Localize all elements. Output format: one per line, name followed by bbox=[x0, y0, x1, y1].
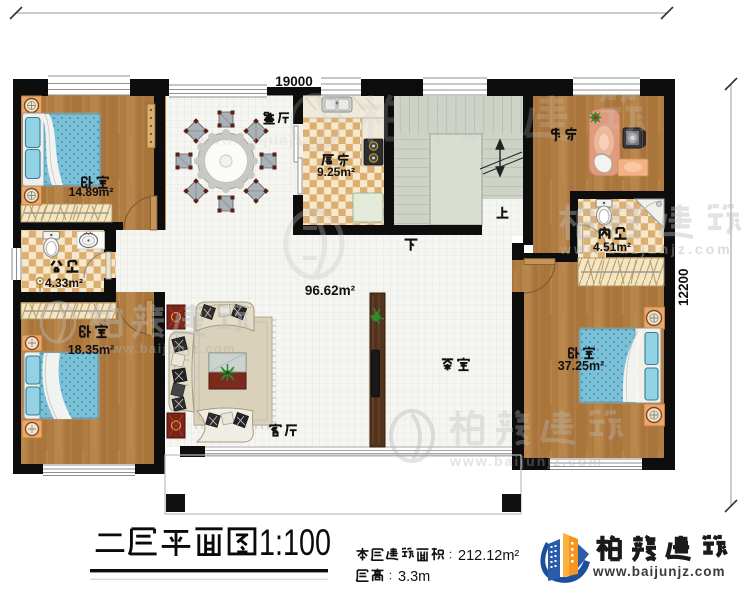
svg-text:4.51m²: 4.51m² bbox=[593, 240, 631, 254]
svg-text:www.baijunjz.com: www.baijunjz.com bbox=[99, 341, 236, 356]
svg-text:18.35m²: 18.35m² bbox=[68, 343, 115, 357]
svg-text:37.25m²: 37.25m² bbox=[558, 359, 605, 373]
svg-text:14.89m²: 14.89m² bbox=[69, 185, 114, 199]
svg-text:3.3m: 3.3m bbox=[398, 569, 430, 585]
svg-text:9.25m²: 9.25m² bbox=[317, 165, 355, 179]
svg-text:www.ba1junjz.com: www.ba1junjz.com bbox=[559, 241, 733, 257]
svg-text:www.baijunjz.com: www.baijunjz.com bbox=[449, 453, 603, 469]
svg-text:96.62m²: 96.62m² bbox=[305, 283, 356, 298]
svg-text:www.baijunjz.com: www.baijunjz.com bbox=[592, 564, 726, 579]
svg-text:19000: 19000 bbox=[275, 74, 313, 89]
svg-text:1:100: 1:100 bbox=[259, 522, 331, 563]
svg-text:212.12m²: 212.12m² bbox=[458, 548, 519, 564]
svg-text:12200: 12200 bbox=[676, 268, 691, 306]
svg-text:4.33m²: 4.33m² bbox=[45, 276, 83, 290]
svg-text:www.baijunjz.com: www.baijunjz.com bbox=[196, 132, 342, 148]
